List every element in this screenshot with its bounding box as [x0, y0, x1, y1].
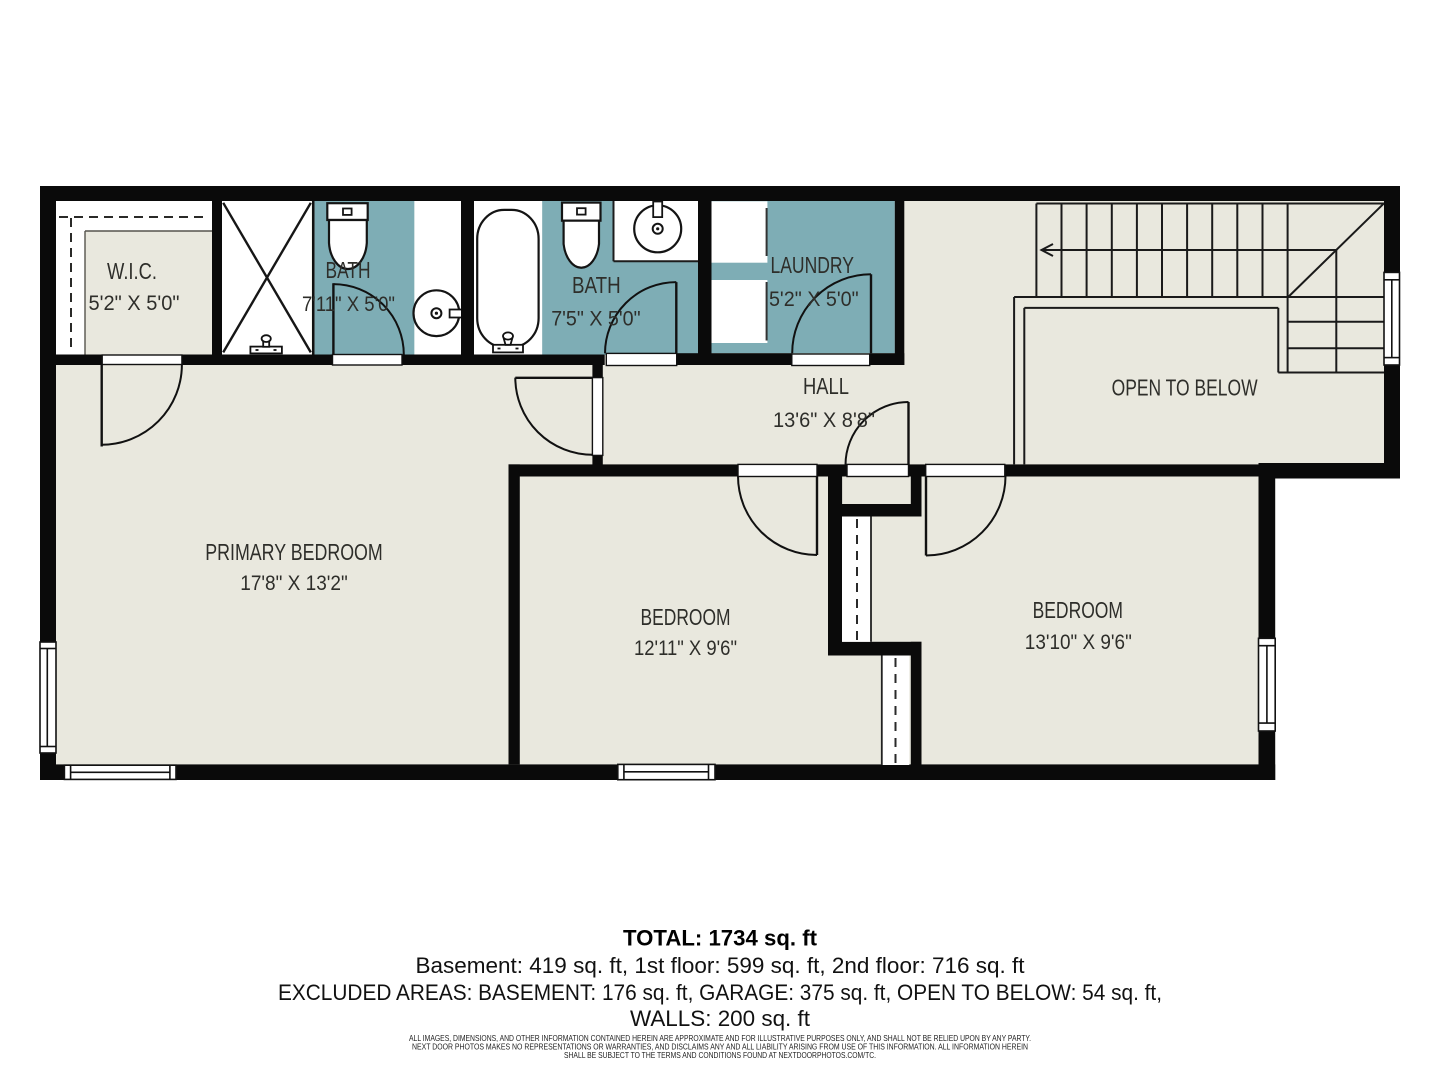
svg-text:EXCLUDED AREAS: BASEMENT: 176: EXCLUDED AREAS: BASEMENT: 176 sq. ft, GA…	[278, 980, 1162, 1005]
svg-text:5'2" X 5'0": 5'2" X 5'0"	[769, 288, 859, 311]
svg-text:BATH: BATH	[326, 257, 371, 283]
svg-text:Basement: 419 sq. ft, 1st floo: Basement: 419 sq. ft, 1st floor: 599 sq.…	[416, 953, 1025, 978]
svg-text:BEDROOM: BEDROOM	[641, 604, 731, 630]
svg-text:7'5" X 5'0": 7'5" X 5'0"	[551, 308, 640, 331]
svg-text:5'2" X 5'0": 5'2" X 5'0"	[89, 292, 180, 315]
svg-text:12'11" X 9'6": 12'11" X 9'6"	[634, 637, 737, 660]
svg-text:LAUNDRY: LAUNDRY	[771, 252, 854, 278]
svg-text:17'8" X 13'2": 17'8" X 13'2"	[240, 572, 348, 595]
svg-text:13'6" X 8'8": 13'6" X 8'8"	[773, 409, 875, 432]
svg-text:TOTAL: 1734 sq. ft: TOTAL: 1734 sq. ft	[623, 926, 817, 951]
svg-text:OPEN TO BELOW: OPEN TO BELOW	[1112, 374, 1258, 400]
svg-text:PRIMARY BEDROOM: PRIMARY BEDROOM	[205, 539, 383, 565]
svg-text:WALLS: 200 sq. ft: WALLS: 200 sq. ft	[630, 1006, 810, 1031]
svg-text:13'10" X 9'6": 13'10" X 9'6"	[1025, 631, 1132, 654]
svg-text:HALL: HALL	[803, 373, 849, 399]
svg-text:W.I.C.: W.I.C.	[107, 258, 157, 284]
svg-text:BEDROOM: BEDROOM	[1033, 597, 1123, 623]
svg-text:BATH: BATH	[572, 272, 621, 298]
svg-text:SHALL BE SUBJECT TO THE TERMS: SHALL BE SUBJECT TO THE TERMS AND CONDIT…	[564, 1051, 876, 1060]
svg-text:7'11" X 5'0": 7'11" X 5'0"	[302, 293, 395, 316]
